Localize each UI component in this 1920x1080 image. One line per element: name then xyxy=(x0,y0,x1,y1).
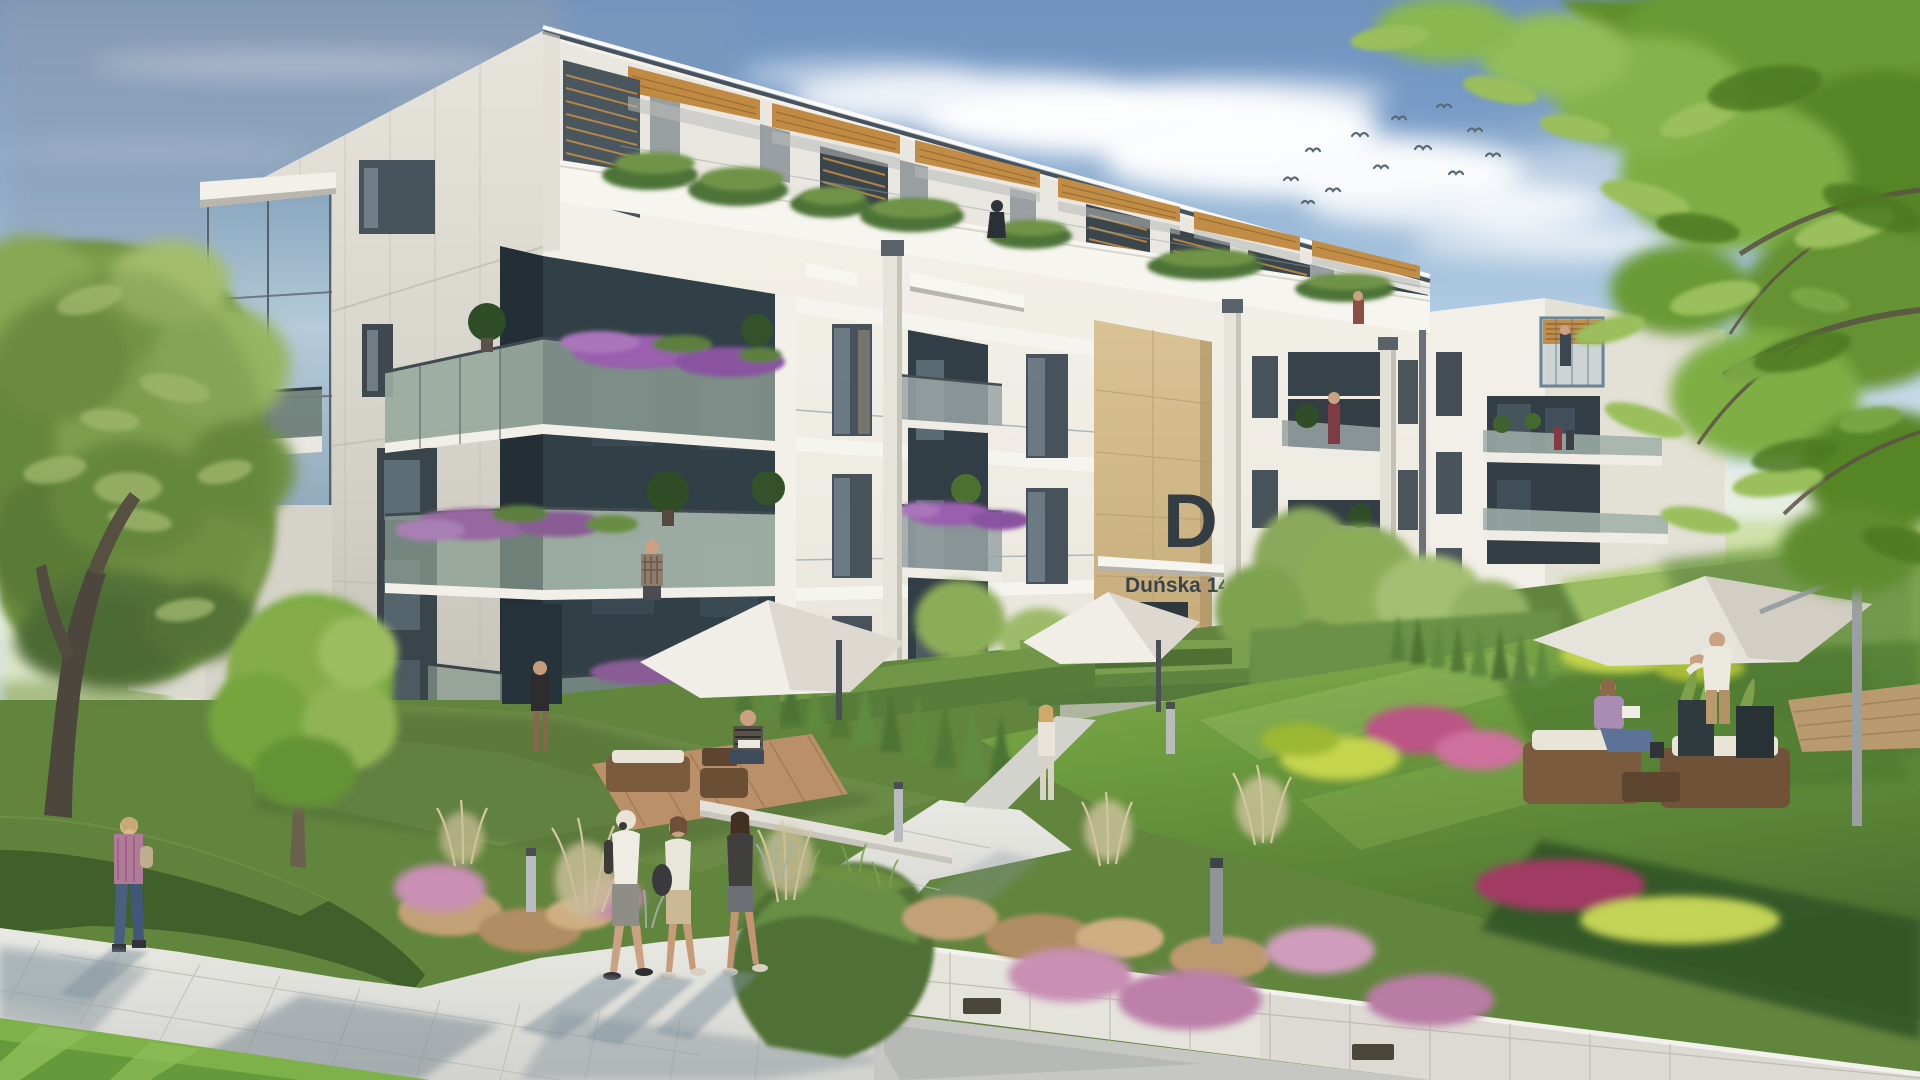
svg-text:Duńska 14: Duńska 14 xyxy=(1125,574,1230,597)
svg-text:D: D xyxy=(1163,479,1218,564)
